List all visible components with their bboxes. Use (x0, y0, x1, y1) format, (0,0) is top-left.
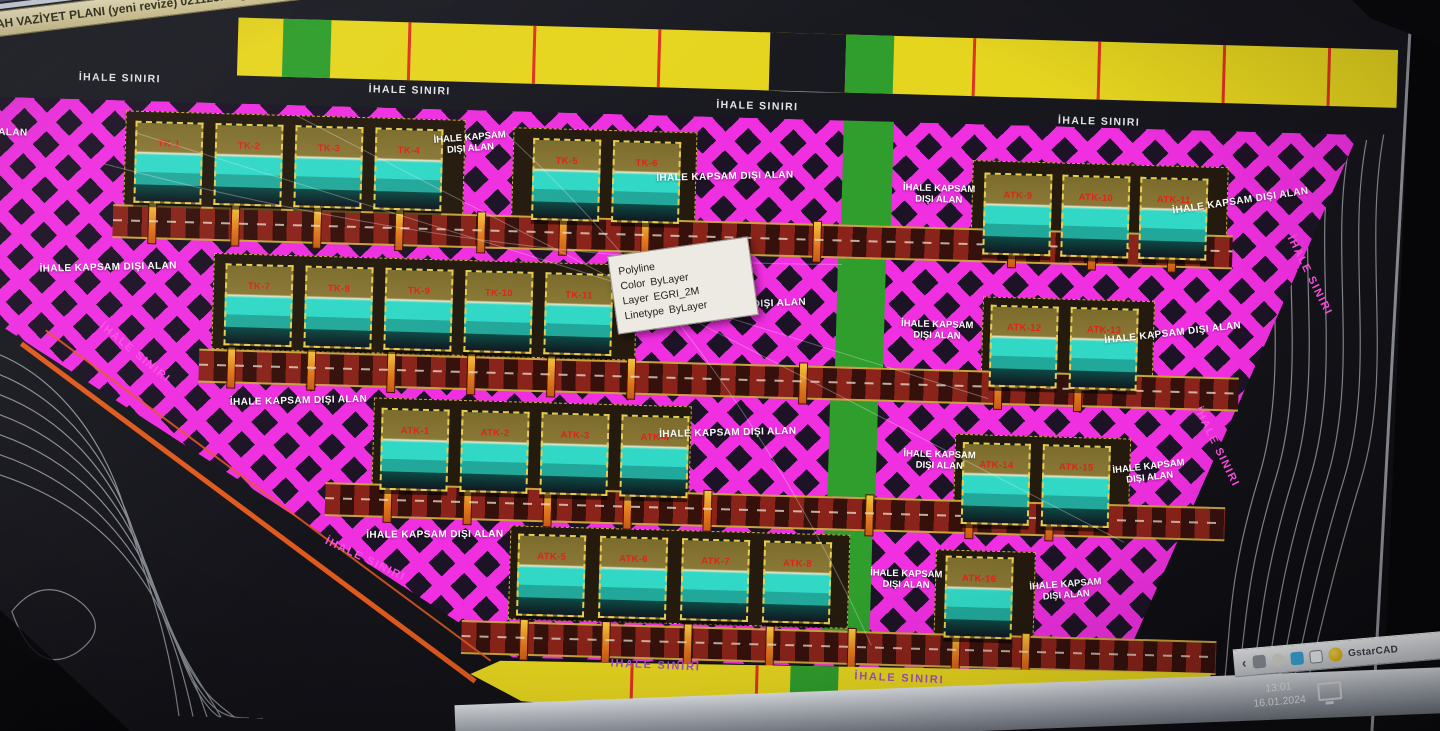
block-label: TK-1 (137, 138, 201, 151)
road-post (1021, 633, 1031, 675)
tray-expand-icon[interactable]: ‹ (1241, 655, 1247, 669)
excluded-line2: DIŞI ALAN (915, 194, 962, 206)
cad-canvas[interactable]: TK-1TK-2TK-3TK-4 TK-5TK-6 ATK-9ATK-10ATK… (0, 11, 1440, 731)
road-post (386, 351, 396, 393)
block-label: TK-10 (467, 287, 531, 300)
block-label: TK-3 (297, 142, 361, 155)
building-block[interactable]: TK-9 (383, 268, 453, 352)
block-label: TK-8 (307, 283, 371, 296)
block-row-3-left: ATK-1ATK-2ATK-3ATK-4 (379, 408, 689, 499)
block-label: ATK-10 (1064, 192, 1128, 205)
tray-icon-shield[interactable] (1252, 654, 1266, 668)
building-block[interactable]: ATK-13 (1069, 307, 1139, 391)
block-row-4-left: ATK-5ATK-6ATK-7ATK-8 (516, 534, 832, 625)
building-block[interactable]: ATK-3 (539, 412, 609, 496)
excluded-line1: İHALE KAPSAM (870, 567, 943, 580)
boundary-label: İHALE SINIRI (1058, 114, 1140, 128)
road-post (683, 623, 693, 665)
excluded-area-label: İHALE KAPSAM DIŞI ALAN (851, 567, 962, 593)
building-block[interactable]: ATK-16 (944, 556, 1014, 640)
block-label: ATK-1 (383, 425, 447, 438)
green-strip (835, 258, 886, 367)
road-post (519, 619, 529, 661)
building-block[interactable]: ATK-10 (1060, 175, 1130, 259)
building-block[interactable]: ATK-11 (1138, 177, 1208, 261)
block-label: TK-6 (614, 157, 678, 170)
building-block[interactable]: TK-11 (543, 272, 613, 356)
road-post (601, 621, 611, 663)
excluded-line1: İHALE KAPSAM (903, 448, 976, 461)
building-block[interactable]: ATK-5 (516, 534, 586, 618)
block-label: ATK-3 (543, 429, 607, 442)
road-post (702, 490, 712, 532)
building-block[interactable]: ATK-12 (989, 305, 1059, 389)
road-post (476, 211, 486, 253)
road-post (230, 204, 240, 246)
building-block[interactable]: TK-7 (223, 263, 293, 347)
block-row-2-left: TK-7TK-8TK-9TK-10TK-11 (223, 263, 613, 356)
parcel-divider (1327, 48, 1332, 106)
gstarcad-logo-icon[interactable] (1328, 647, 1343, 662)
tray-icon-window[interactable] (1309, 649, 1323, 663)
building-block[interactable]: TK-2 (213, 123, 283, 207)
building-block[interactable]: TK-3 (293, 125, 363, 209)
green-strip (845, 35, 895, 94)
boundary-label: İHALE SINIRI (79, 71, 161, 85)
block-row-1-left: TK-1TK-2TK-3TK-4 (133, 121, 443, 212)
excluded-line2: DIŞI ALAN (913, 330, 960, 342)
excluded-area-label: İHALE KAPSAM DIŞI ALAN (366, 529, 503, 541)
block-label: TK-5 (535, 155, 599, 168)
block-label: ATK-8 (765, 557, 829, 570)
parcel-divider (1222, 45, 1227, 103)
block-label: ATK-7 (683, 555, 747, 568)
road-post (226, 346, 236, 388)
excluded-line1: İHALE KAPSAM (901, 318, 974, 331)
building-block[interactable]: ATK-6 (598, 536, 668, 620)
road-gap (769, 32, 847, 92)
boundary-label: İHALE SINIRI (716, 99, 798, 113)
gstarcad-label[interactable]: GstarCAD (1348, 644, 1399, 659)
parcel-divider (972, 38, 977, 96)
road-post (394, 209, 404, 251)
road-post (306, 349, 316, 391)
taskbar: ‹ GstarCAD 13:01 16.01.2024 (1233, 631, 1440, 731)
road-post (812, 221, 822, 263)
block-row-1-right: ATK-9ATK-10ATK-11 (982, 172, 1208, 260)
building-block[interactable]: ATK-2 (459, 410, 529, 494)
block-label: TK-9 (387, 285, 451, 298)
block-label: ATK-5 (519, 551, 583, 564)
tooltip-linetype-label: Linetype (624, 305, 665, 322)
building-block[interactable]: TK-8 (303, 266, 373, 350)
block-label: ATK-12 (992, 322, 1056, 335)
block-row-4-right: ATK-16 (944, 556, 1014, 640)
show-desktop-icon[interactable] (1316, 681, 1341, 701)
building-block[interactable]: ATK-4 (619, 414, 689, 498)
road-post (466, 353, 476, 395)
clock[interactable]: 13:01 16.01.2024 (1252, 679, 1307, 711)
building-block[interactable]: ATK-8 (762, 540, 832, 624)
building-block[interactable]: ATK-1 (379, 408, 449, 492)
green-strip (282, 19, 332, 78)
road-post (765, 626, 775, 668)
green-strip (841, 120, 894, 225)
excluded-line2: DIŞI ALAN (916, 460, 963, 472)
road-post (798, 362, 808, 404)
road-post (626, 358, 636, 400)
screen-photo: TK-1TK-2TK-3TK-4 TK-5TK-6 ATK-9ATK-10ATK… (0, 0, 1440, 731)
excluded-line2: DIŞI ALAN (882, 579, 929, 591)
building-block[interactable]: ATK-7 (680, 538, 750, 622)
boundary-label: İHALE SINIRI (368, 83, 450, 97)
building-block[interactable]: TK-10 (463, 270, 533, 354)
block-label: TK-11 (547, 289, 611, 302)
building-block[interactable]: TK-5 (531, 138, 601, 222)
block-label: ATK-9 (986, 189, 1050, 202)
parcel-divider (532, 26, 537, 84)
block-label: ATK-6 (601, 553, 665, 566)
block-label: ATK-2 (463, 427, 527, 440)
parcel-divider (657, 29, 662, 87)
parcel-divider (1097, 42, 1102, 100)
building-block[interactable]: TK-1 (133, 121, 203, 205)
road-post (864, 494, 874, 536)
green-strip (827, 400, 878, 497)
excluded-area-label: İHALE KAPSAM DIŞI ALAN (882, 318, 993, 344)
excluded-area-label: İHALE KAPSAM DIŞI ALAN (884, 182, 995, 208)
tooltip-color-label: Color (620, 277, 647, 292)
excluded-area-label: İHALE KAPSAM DIŞI ALAN (884, 448, 995, 474)
tray-icon-bulb[interactable] (1271, 653, 1285, 667)
block-label: TK-2 (217, 140, 281, 153)
road-post (546, 355, 556, 397)
road-post (312, 207, 322, 249)
tooltip-layer-label: Layer (622, 292, 650, 308)
block-row-2-right: ATK-12ATK-13 (989, 305, 1139, 391)
road-post (147, 202, 157, 244)
tooltip-linetype-value: ByLayer (668, 299, 708, 316)
road-post (847, 628, 857, 670)
excluded-line1: İHALE KAPSAM (903, 182, 976, 195)
tray-icon-cloud[interactable] (1290, 651, 1304, 665)
parcel-divider (407, 22, 412, 80)
block-label: TK-7 (227, 280, 291, 293)
